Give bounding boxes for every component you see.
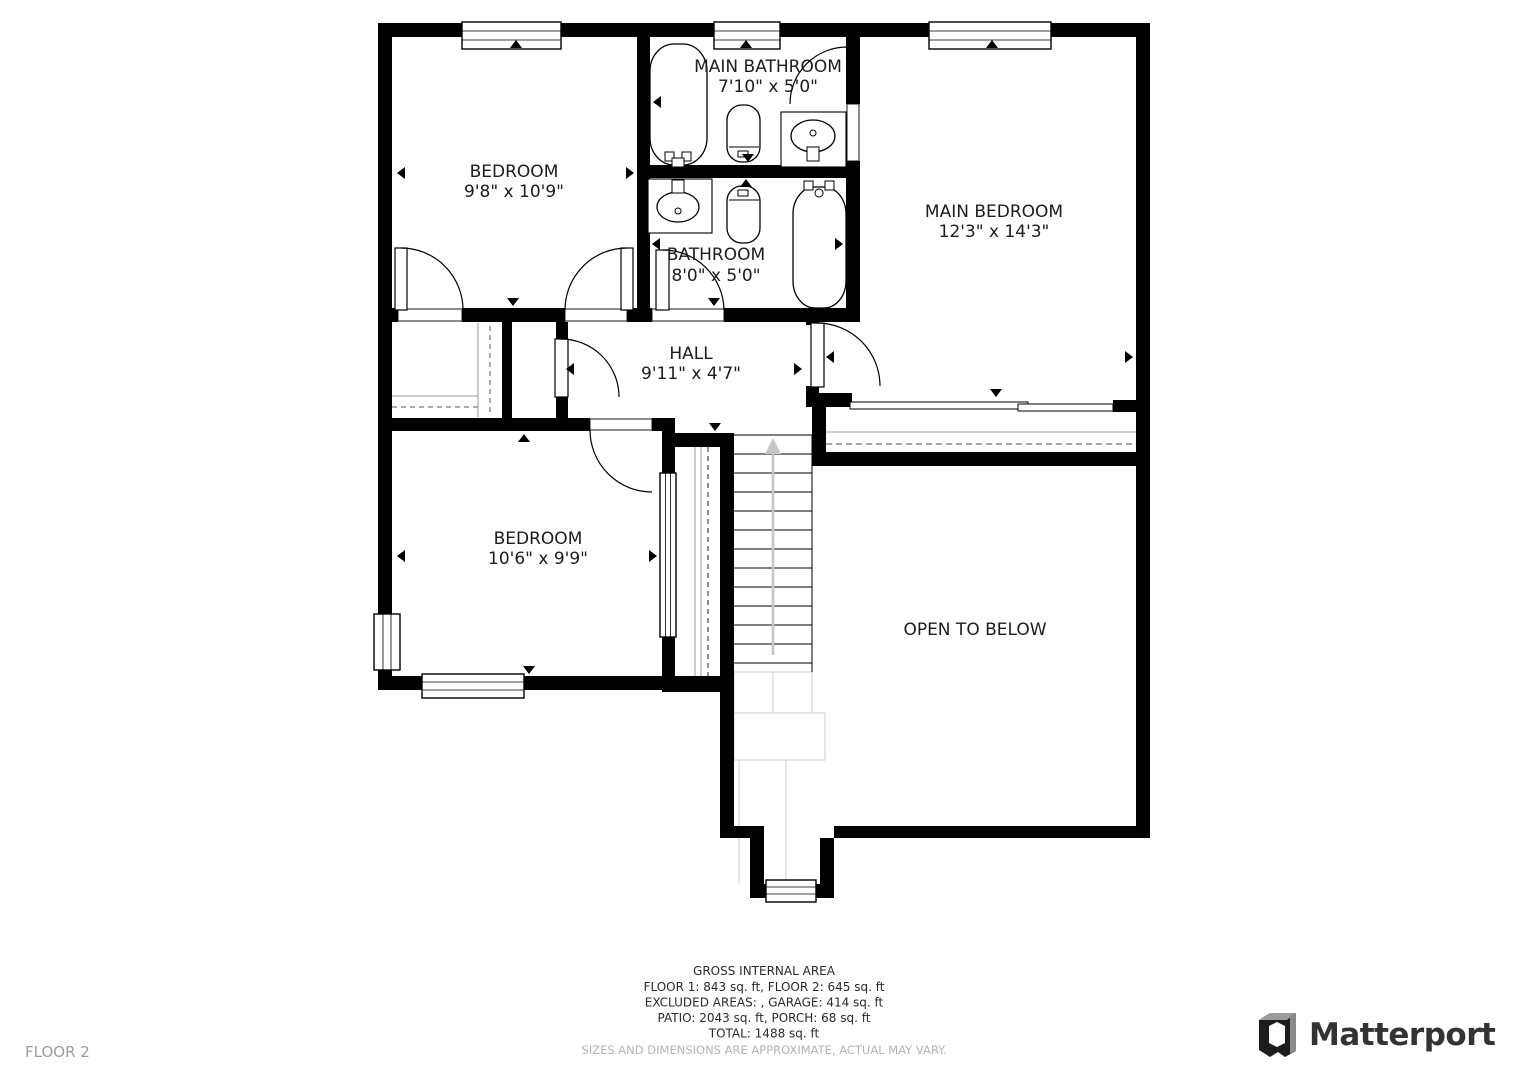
marker-right-icon bbox=[626, 167, 634, 179]
wall bbox=[378, 418, 590, 431]
sink-icon bbox=[657, 192, 699, 222]
room-dims-main-bathroom: 7'10" x 5'0" bbox=[718, 77, 818, 97]
wall bbox=[378, 676, 423, 690]
room-label-open-to-below: OPEN TO BELOW bbox=[903, 620, 1046, 640]
marker-down-icon bbox=[708, 298, 720, 306]
sliding-closet-doors bbox=[850, 402, 1113, 411]
area-summary-line: TOTAL: 1488 sq. ft bbox=[708, 1027, 820, 1041]
sliding-door-panel bbox=[850, 402, 1028, 409]
door-arc bbox=[590, 430, 652, 492]
walls bbox=[378, 23, 1150, 898]
sink-drain bbox=[675, 208, 681, 214]
area-summary-line: PATIO: 2043 sq. ft, PORCH: 68 sq. ft bbox=[658, 1011, 871, 1025]
wall bbox=[556, 396, 568, 418]
room-label-bedroom-2: BEDROOM bbox=[494, 529, 583, 549]
area-summary-disclaimer: SIZES AND DIMENSIONS ARE APPROXIMATE, AC… bbox=[582, 1043, 947, 1057]
floor-plan-page: BEDROOM 9'8" x 10'9" MAIN BATHROOM 7'10"… bbox=[0, 0, 1527, 1080]
tub-faucet-icon bbox=[672, 158, 684, 167]
door-leaf bbox=[621, 248, 633, 310]
wall bbox=[820, 838, 834, 898]
marker-down-icon bbox=[507, 298, 519, 306]
wall bbox=[1113, 400, 1136, 412]
logo-right-bevel bbox=[1290, 1013, 1296, 1054]
marker-left-icon bbox=[397, 550, 405, 562]
door-leaf bbox=[811, 323, 824, 387]
wall bbox=[834, 826, 1150, 838]
matterport-logo: Matterport bbox=[1259, 1013, 1496, 1057]
window-frame bbox=[766, 880, 816, 902]
door-arc bbox=[401, 248, 463, 310]
wall bbox=[750, 826, 764, 898]
room-dims-bathroom: 8'0" x 5'0" bbox=[671, 266, 760, 286]
wall bbox=[502, 322, 512, 418]
room-dims-hall: 9'11" x 4'7" bbox=[641, 364, 741, 384]
marker-down-icon bbox=[709, 423, 721, 431]
tub-faucet-icon bbox=[804, 181, 813, 190]
marker-right-icon bbox=[649, 550, 657, 562]
room-dims-main-bedroom: 12'3" x 14'3" bbox=[939, 222, 1050, 242]
marker-left-icon bbox=[397, 167, 405, 179]
stair-direction-arrow-icon bbox=[765, 438, 781, 655]
wall bbox=[846, 37, 860, 104]
matterport-wordmark: Matterport bbox=[1309, 1017, 1496, 1053]
wall bbox=[556, 322, 568, 340]
door-arc bbox=[565, 248, 627, 310]
sink-drain bbox=[810, 130, 816, 136]
below-floor-outlines bbox=[734, 672, 825, 884]
sink-faucet-icon bbox=[807, 147, 819, 161]
marker-right-icon bbox=[1125, 351, 1133, 363]
room-dims-bedroom-2: 10'6" x 9'9" bbox=[488, 549, 588, 569]
room-label-main-bathroom: MAIN BATHROOM bbox=[694, 57, 842, 77]
area-summary: GROSS INTERNAL AREA FLOOR 1: 843 sq. ft,… bbox=[582, 964, 947, 1057]
window-frame bbox=[422, 674, 524, 698]
door-opening bbox=[398, 309, 462, 321]
marker-down-icon bbox=[523, 666, 535, 674]
wall bbox=[846, 161, 860, 322]
sliding-door-panel bbox=[1018, 404, 1113, 411]
door-leaf bbox=[395, 248, 407, 310]
room-label-main-bedroom: MAIN BEDROOM bbox=[925, 202, 1063, 222]
window-frame bbox=[660, 473, 676, 637]
wall bbox=[662, 676, 722, 692]
door-opening bbox=[652, 309, 724, 321]
door-arc bbox=[817, 323, 880, 386]
area-summary-title: GROSS INTERNAL AREA bbox=[693, 964, 836, 978]
door-leaf bbox=[555, 339, 568, 397]
wall bbox=[1136, 23, 1150, 838]
wall bbox=[724, 308, 860, 322]
window-frame bbox=[462, 22, 561, 49]
tub-faucet-icon bbox=[815, 189, 823, 197]
room-dims-bedroom-1: 9'8" x 10'9" bbox=[464, 182, 564, 202]
area-summary-line: FLOOR 1: 843 sq. ft, FLOOR 2: 645 sq. ft bbox=[644, 980, 885, 994]
door-opening bbox=[847, 104, 859, 161]
wall bbox=[462, 308, 565, 322]
marker-down-icon bbox=[990, 389, 1002, 397]
door-opening bbox=[565, 309, 627, 321]
area-summary-line: EXCLUDED AREAS: , GARAGE: 414 sq. ft bbox=[645, 996, 884, 1010]
floor-label: FLOOR 2 bbox=[25, 1043, 90, 1061]
tub-faucet-icon bbox=[825, 181, 834, 190]
door-opening bbox=[590, 419, 652, 430]
matterport-logo-icon bbox=[1259, 1013, 1296, 1057]
sink-faucet-icon bbox=[672, 180, 684, 193]
marker-left-icon bbox=[826, 351, 834, 363]
wall bbox=[673, 433, 734, 447]
stair-arrow-head bbox=[765, 438, 781, 454]
wall bbox=[812, 452, 1150, 466]
marker-right-icon bbox=[794, 363, 802, 375]
floor-plan-canvas: BEDROOM 9'8" x 10'9" MAIN BATHROOM 7'10"… bbox=[0, 0, 1527, 1080]
room-label-hall: HALL bbox=[669, 344, 713, 364]
wall bbox=[720, 447, 734, 838]
marker-up-icon bbox=[740, 179, 752, 187]
marker-left-icon bbox=[652, 238, 660, 250]
wall bbox=[812, 393, 852, 407]
stairwell-strip bbox=[695, 447, 708, 676]
window-frame bbox=[374, 614, 400, 670]
room-label-bathroom: BATHROOM bbox=[667, 245, 765, 265]
room-labels: BEDROOM 9'8" x 10'9" MAIN BATHROOM 7'10"… bbox=[464, 57, 1063, 640]
room-label-bedroom-1: BEDROOM bbox=[470, 162, 559, 182]
below-outline bbox=[734, 713, 825, 760]
marker-up-icon bbox=[518, 434, 530, 442]
wall bbox=[378, 23, 392, 690]
wall bbox=[523, 676, 675, 690]
toilet-flush-icon bbox=[738, 190, 748, 196]
